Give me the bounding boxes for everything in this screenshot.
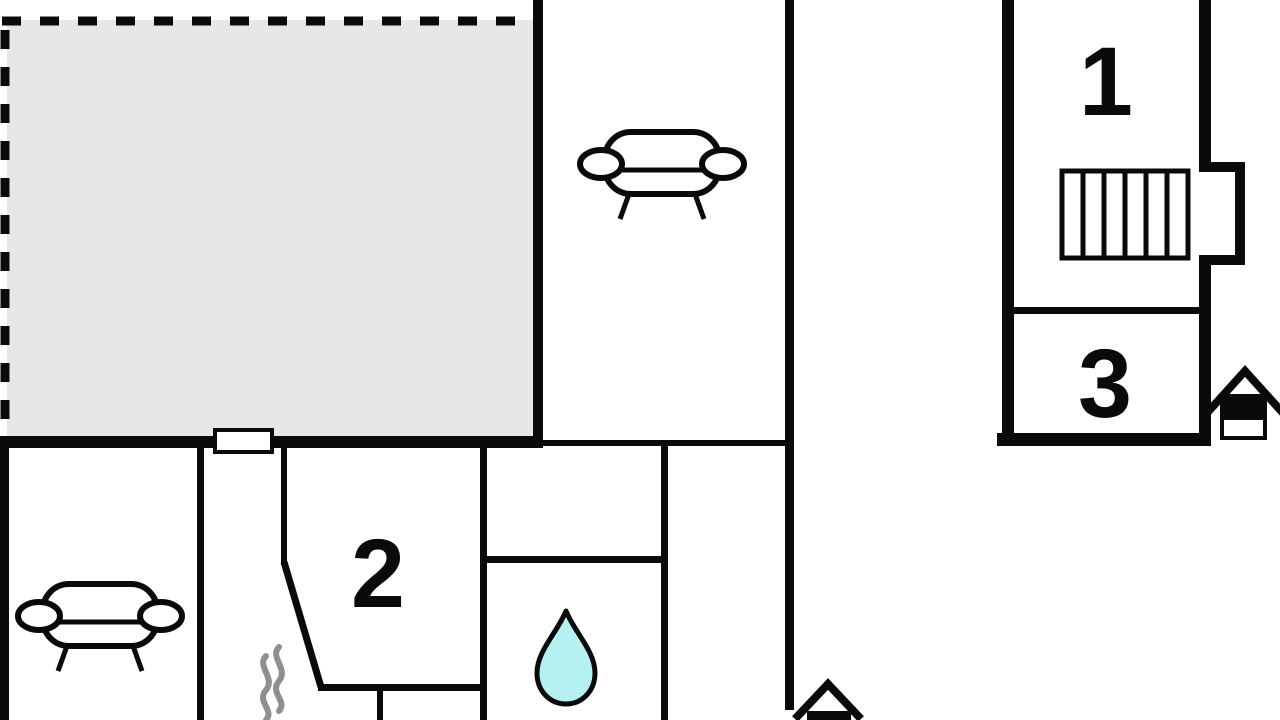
wall-bathroom-top: [481, 556, 668, 563]
window-icon: [215, 430, 272, 452]
wall-lounge-right: [197, 448, 204, 720]
sofa-icon: [580, 132, 744, 219]
water-drop-icon: [537, 611, 595, 704]
wall-room2-right: [480, 446, 487, 720]
wall-bottom-divider: [377, 688, 383, 720]
terrace-area: [7, 20, 537, 438]
steam-wave: [276, 647, 282, 711]
wall-annex-divider: [1005, 307, 1203, 314]
wall-outer-left-lower: [0, 448, 9, 720]
house-icon: [1207, 371, 1280, 438]
wall-annex-notch-right: [1235, 162, 1245, 265]
house-icon: [795, 684, 861, 720]
room-3-label: 3: [1078, 329, 1132, 438]
floor-plan-canvas: 1 2 3: [0, 0, 1280, 720]
floor-plan: 1 2 3: [0, 0, 1280, 720]
room-1-label: 1: [1079, 27, 1133, 136]
wall-central-right: [785, 0, 794, 710]
room-2-label: 2: [351, 519, 405, 628]
stairs-icon: [1062, 171, 1188, 258]
house-body-band: [807, 711, 851, 720]
wall-room2-left: [281, 448, 287, 565]
wall-terrace-right: [533, 0, 543, 448]
wall-annex-left: [1002, 0, 1014, 443]
steam-wave: [263, 656, 269, 720]
sofa-icon: [18, 584, 182, 671]
steam-icon: [263, 647, 282, 720]
wall-room2-diagonal-group: [284, 562, 321, 687]
wall-room2-diagonal: [284, 562, 321, 687]
wall-room2-bottom: [318, 684, 486, 691]
wall-annex-right-upper: [1199, 0, 1211, 172]
house-body-band: [1222, 396, 1265, 420]
wall-vertical-mid: [661, 440, 668, 720]
